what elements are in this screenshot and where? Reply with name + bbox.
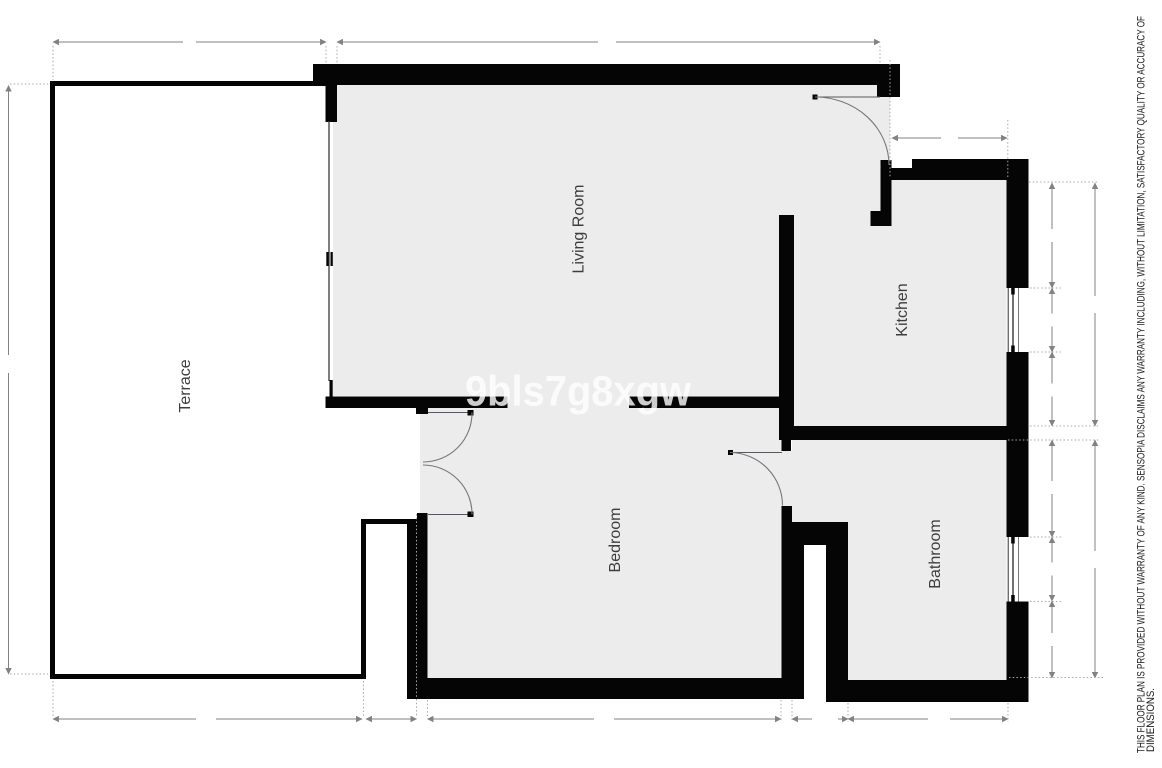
svg-text:DIMENSIONS.: DIMENSIONS. [1145,688,1157,752]
svg-text:Kitchen: Kitchen [894,283,911,336]
svg-text:Bathroom: Bathroom [927,519,944,588]
svg-text:Terrace: Terrace [177,359,194,412]
svg-text:Living Room: Living Room [570,185,587,274]
svg-text:THIS FLOOR PLAN IS PROVIDED WI: THIS FLOOR PLAN IS PROVIDED WITHOUT WARR… [1136,16,1148,753]
svg-text:Bedroom: Bedroom [607,508,624,573]
svg-text:9bls7g8xgw: 9bls7g8xgw [465,368,692,416]
